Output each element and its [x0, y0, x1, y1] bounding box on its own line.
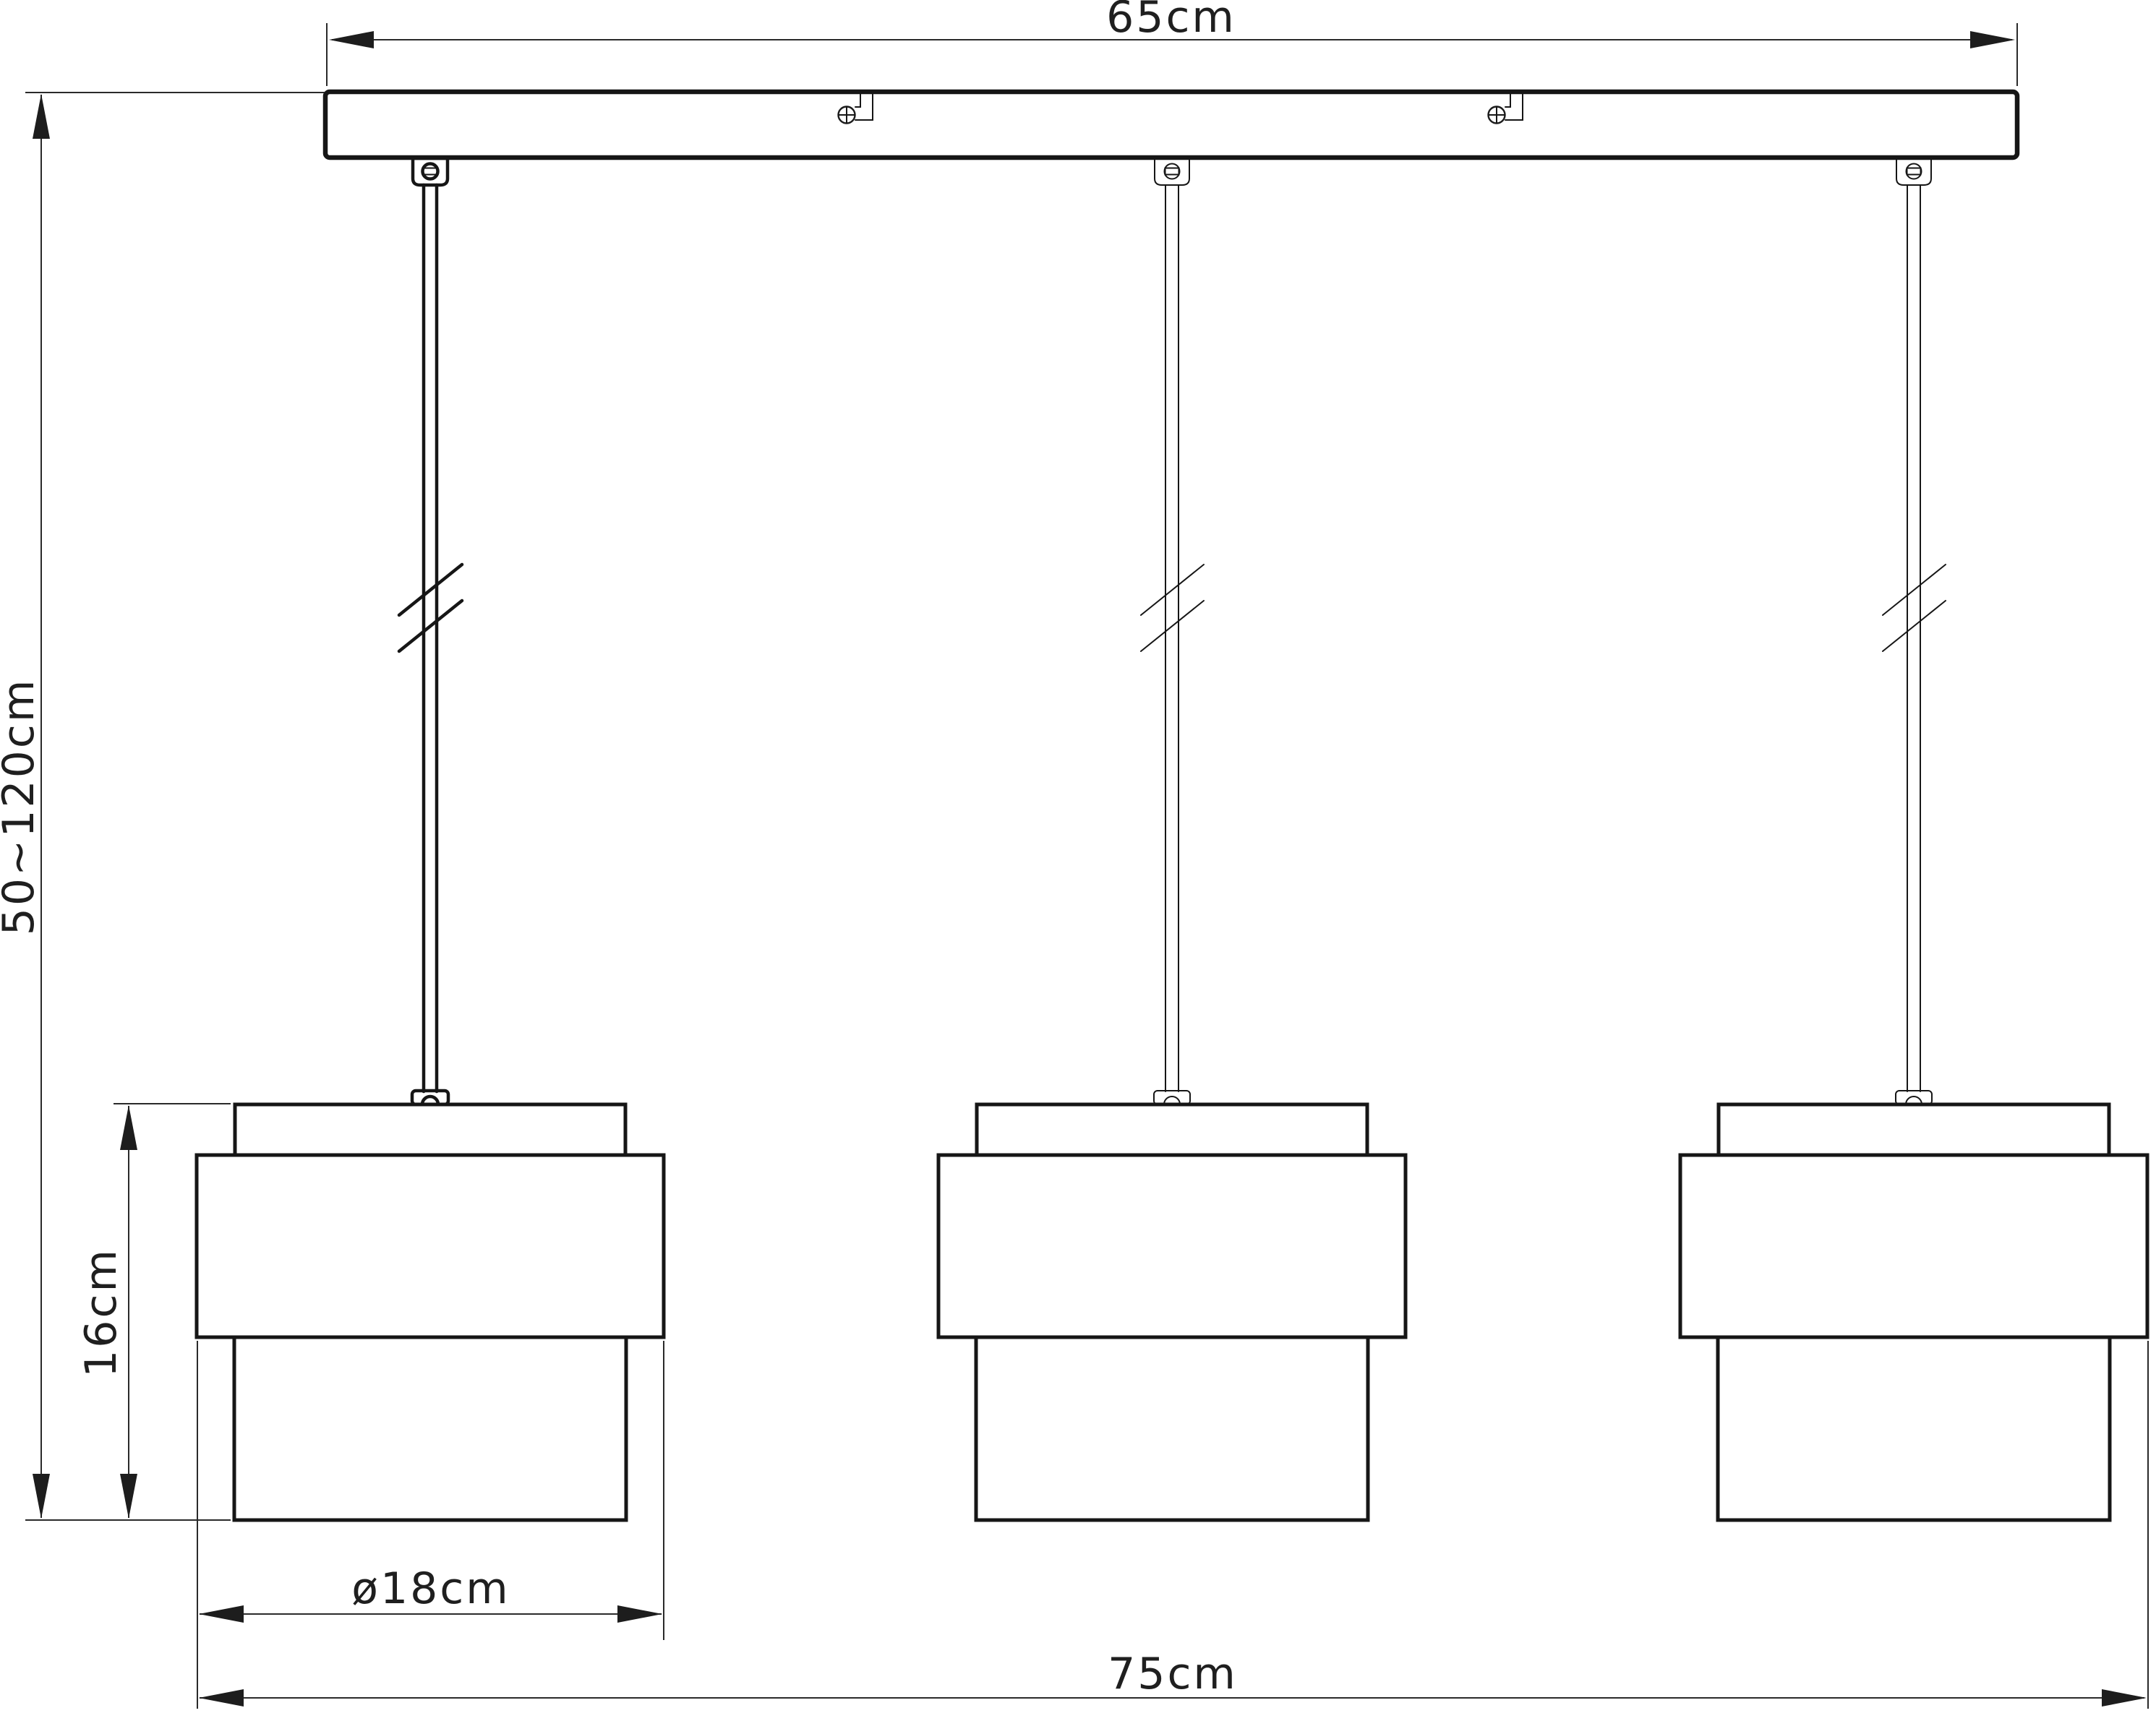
arrowhead-left-icon: [329, 31, 374, 48]
arrowhead-down-icon: [33, 1474, 50, 1519]
arrowhead-left-icon: [199, 1605, 244, 1623]
pendant-left: [197, 158, 664, 1520]
attachment-screw-icon: [1907, 164, 1922, 179]
shade-top-ring: [977, 1104, 1367, 1155]
shade-inner-diffuser: [976, 1337, 1368, 1520]
shade-outer-drum: [197, 1155, 664, 1337]
ceiling-rail: [325, 92, 2017, 158]
dim-suspension-height-label: 50~120cm: [0, 678, 44, 936]
arrowhead-right-icon: [2102, 1689, 2147, 1707]
rail-screw-icon: [839, 94, 873, 124]
screw-slot-icon: [1907, 168, 1921, 175]
arrowhead-up-icon: [33, 94, 50, 139]
technical-drawing-page: 65cm 50~120cm 16cm ø18cm 75cm: [0, 0, 2156, 1721]
arrowhead-up-icon: [120, 1105, 137, 1150]
screw-slot-icon: [1165, 168, 1179, 175]
ceiling-rail-group: [325, 92, 2017, 158]
dim-suspension-height: 50~120cm: [0, 93, 324, 1520]
arrowhead-right-icon: [1970, 31, 2015, 48]
mounting-bracket-icon: [855, 94, 873, 120]
arrowhead-left-icon: [199, 1689, 244, 1707]
dim-shade-diameter-label: ø18cm: [351, 1563, 510, 1614]
attachment-screw-icon: [1165, 164, 1180, 179]
dim-shade-height: 16cm: [76, 1104, 230, 1519]
cord-grip: [1154, 1091, 1190, 1104]
screw-slot-icon: [424, 168, 437, 175]
shade-inner-diffuser: [1718, 1337, 2110, 1520]
attachment-screw-icon: [423, 164, 438, 179]
arrowhead-right-icon: [617, 1605, 662, 1623]
pendant-right: [1680, 158, 2147, 1520]
dim-shade-diameter: ø18cm: [197, 1342, 664, 1708]
shade-outer-drum: [938, 1155, 1406, 1337]
dim-fixture-width-label: 75cm: [1108, 1649, 1238, 1699]
shade-top-ring: [235, 1104, 625, 1155]
rail-screw-icon: [1489, 94, 1523, 124]
shade-outer-drum: [1680, 1155, 2147, 1337]
ceiling-attachment: [1155, 158, 1189, 185]
cord-grip: [1896, 1091, 1932, 1104]
dim-canopy-width: 65cm: [327, 0, 2017, 85]
mounting-bracket-icon: [1505, 94, 1523, 120]
pendant-center: [938, 158, 1406, 1520]
shade-inner-diffuser: [234, 1337, 626, 1520]
ceiling-attachment: [1896, 158, 1931, 185]
arrowhead-down-icon: [120, 1474, 137, 1519]
dim-shade-height-label: 16cm: [76, 1248, 127, 1378]
shade-top-ring: [1719, 1104, 2109, 1155]
dim-canopy-width-label: 65cm: [1106, 0, 1236, 43]
pendant-lamp-dimension-drawing: 65cm 50~120cm 16cm ø18cm 75cm: [0, 0, 2156, 1721]
dim-fixture-width: 75cm: [199, 1342, 2148, 1708]
